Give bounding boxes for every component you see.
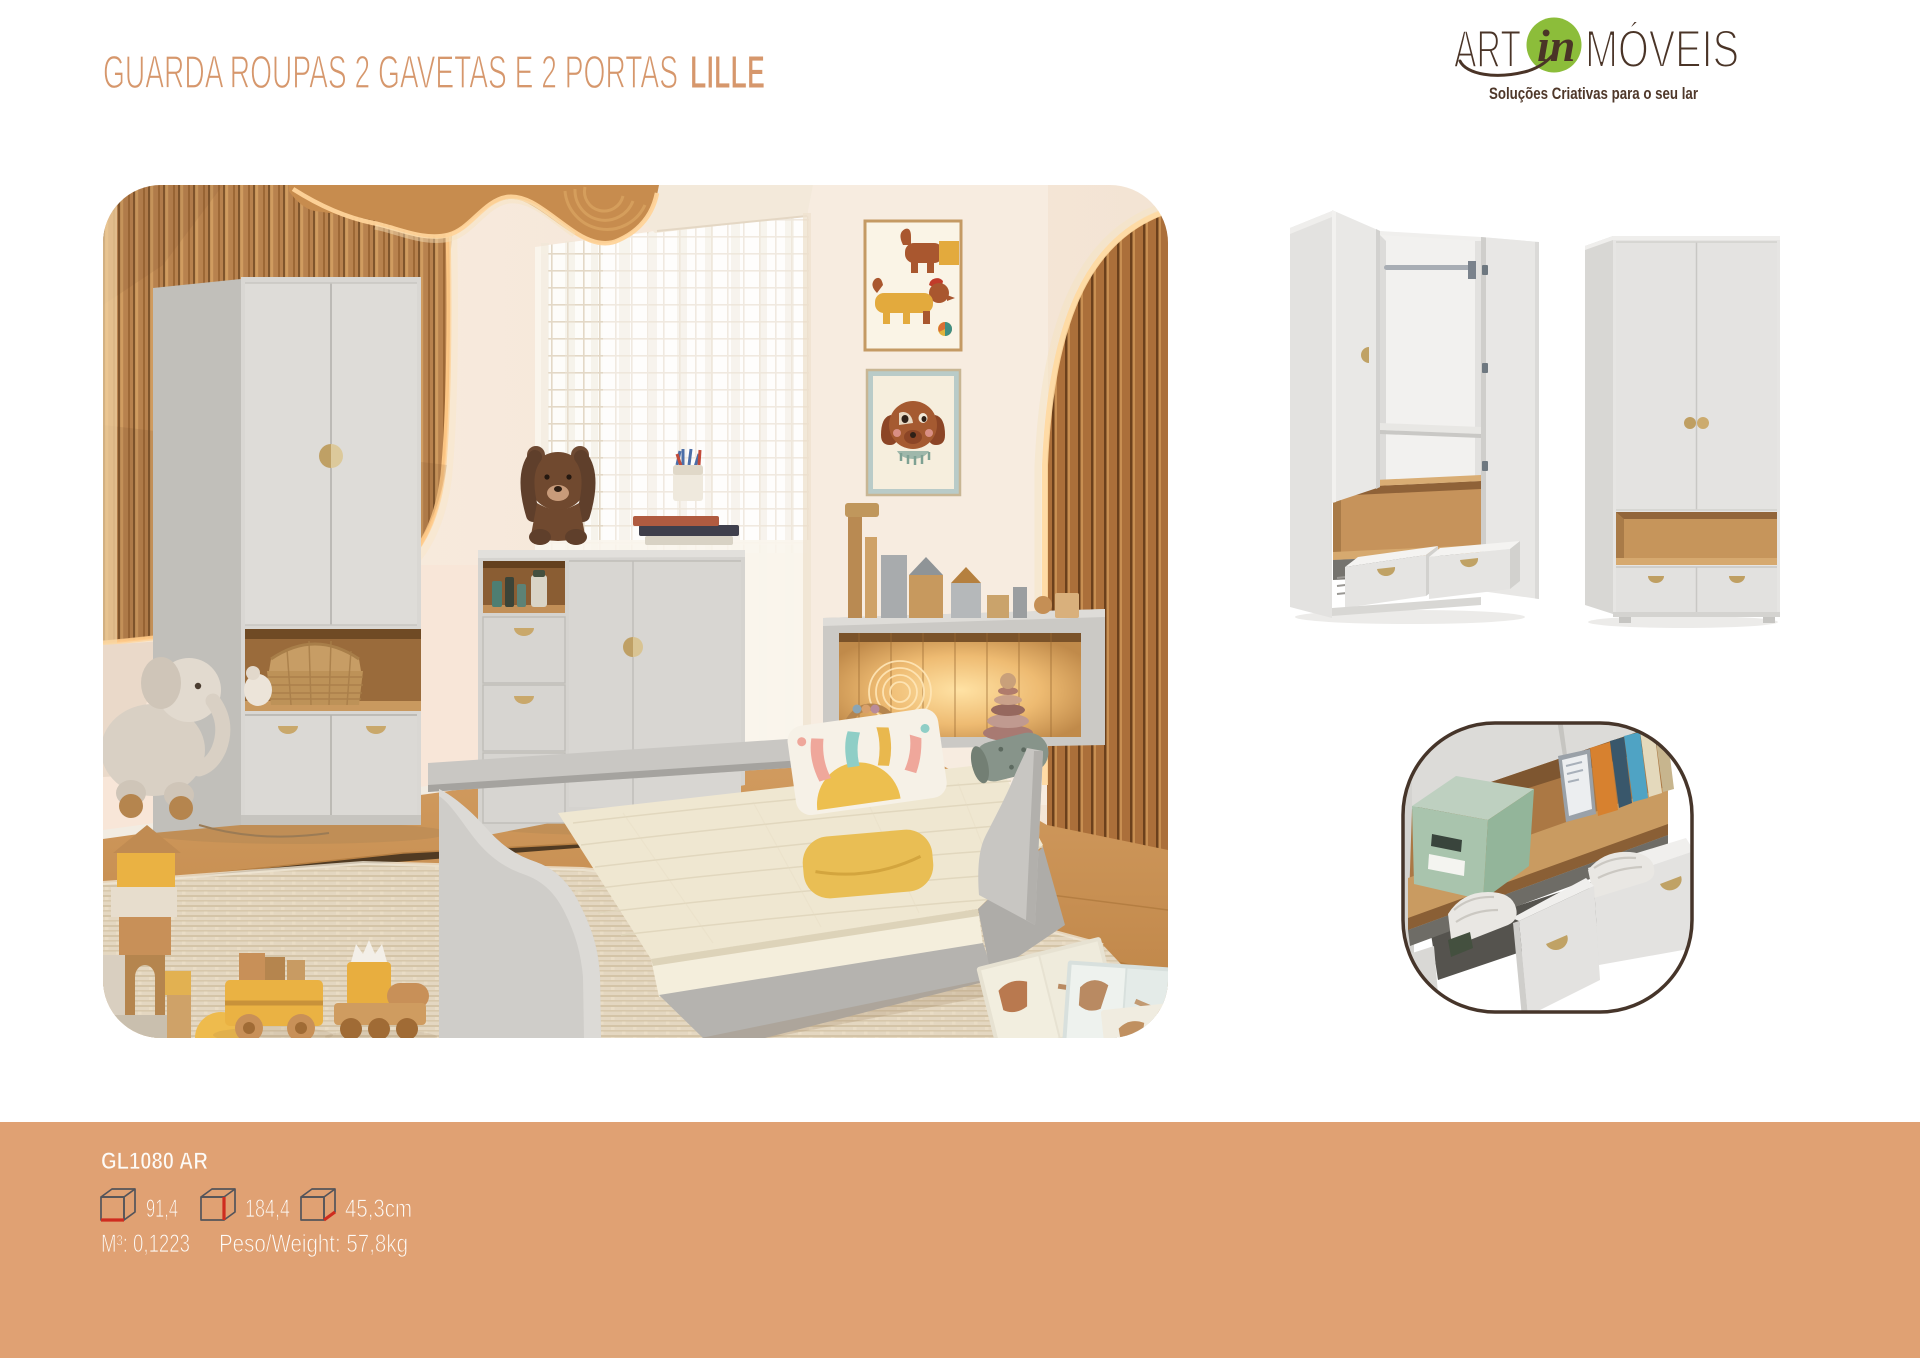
svg-text:GUARDA ROUPAS 2 GAVETAS E 2 PO: GUARDA ROUPAS 2 GAVETAS E 2 PORTAS xyxy=(103,46,678,98)
svg-text:GL1080 AR: GL1080 AR xyxy=(101,1148,208,1175)
svg-text:ART: ART xyxy=(1454,20,1521,79)
svg-text:LILLE: LILLE xyxy=(690,46,765,98)
svg-text:M³: 0,1223: M³: 0,1223 xyxy=(101,1230,190,1258)
svg-text:Peso/Weight: 57,8kg: Peso/Weight: 57,8kg xyxy=(219,1230,408,1258)
svg-text:91,4: 91,4 xyxy=(146,1195,178,1223)
svg-text:184,4: 184,4 xyxy=(245,1195,290,1223)
svg-text:Soluções Criativas para o seu: Soluções Criativas para o seu lar xyxy=(1489,84,1698,103)
svg-text:in: in xyxy=(1537,20,1575,71)
svg-text:MÓVEIS: MÓVEIS xyxy=(1585,20,1739,79)
svg-text:45,3cm: 45,3cm xyxy=(345,1195,412,1223)
